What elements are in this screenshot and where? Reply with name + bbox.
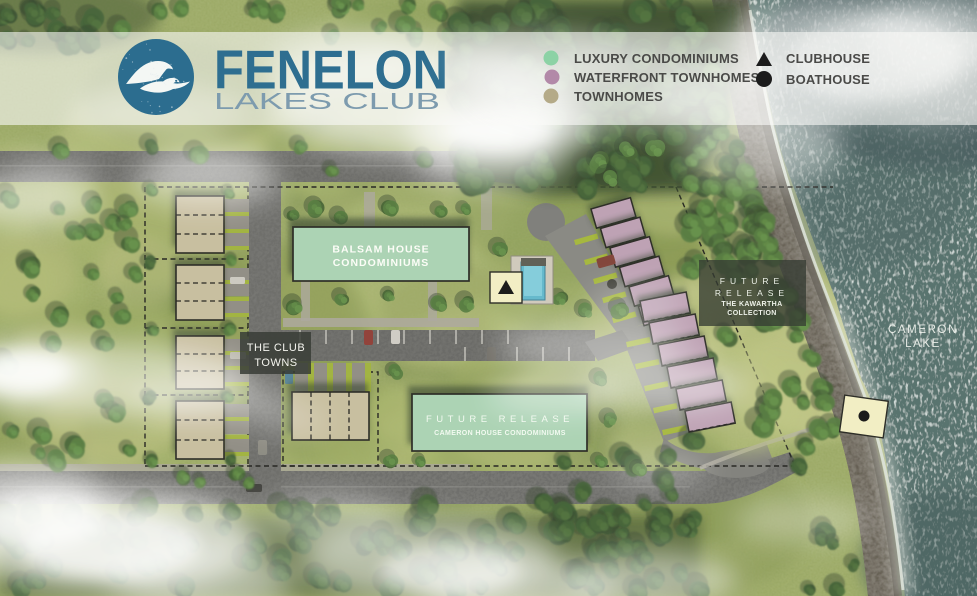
svg-text:TOWNHOMES: TOWNHOMES [574,89,663,104]
svg-text:WATERFRONT TOWNHOMES: WATERFRONT TOWNHOMES [574,70,760,85]
svg-text:CLUBHOUSE: CLUBHOUSE [786,51,870,66]
svg-text:BOATHOUSE: BOATHOUSE [786,72,870,87]
svg-text:LAKES CLUB: LAKES CLUB [214,88,440,114]
svg-text:LUXURY CONDOMINIUMS: LUXURY CONDOMINIUMS [574,51,739,66]
